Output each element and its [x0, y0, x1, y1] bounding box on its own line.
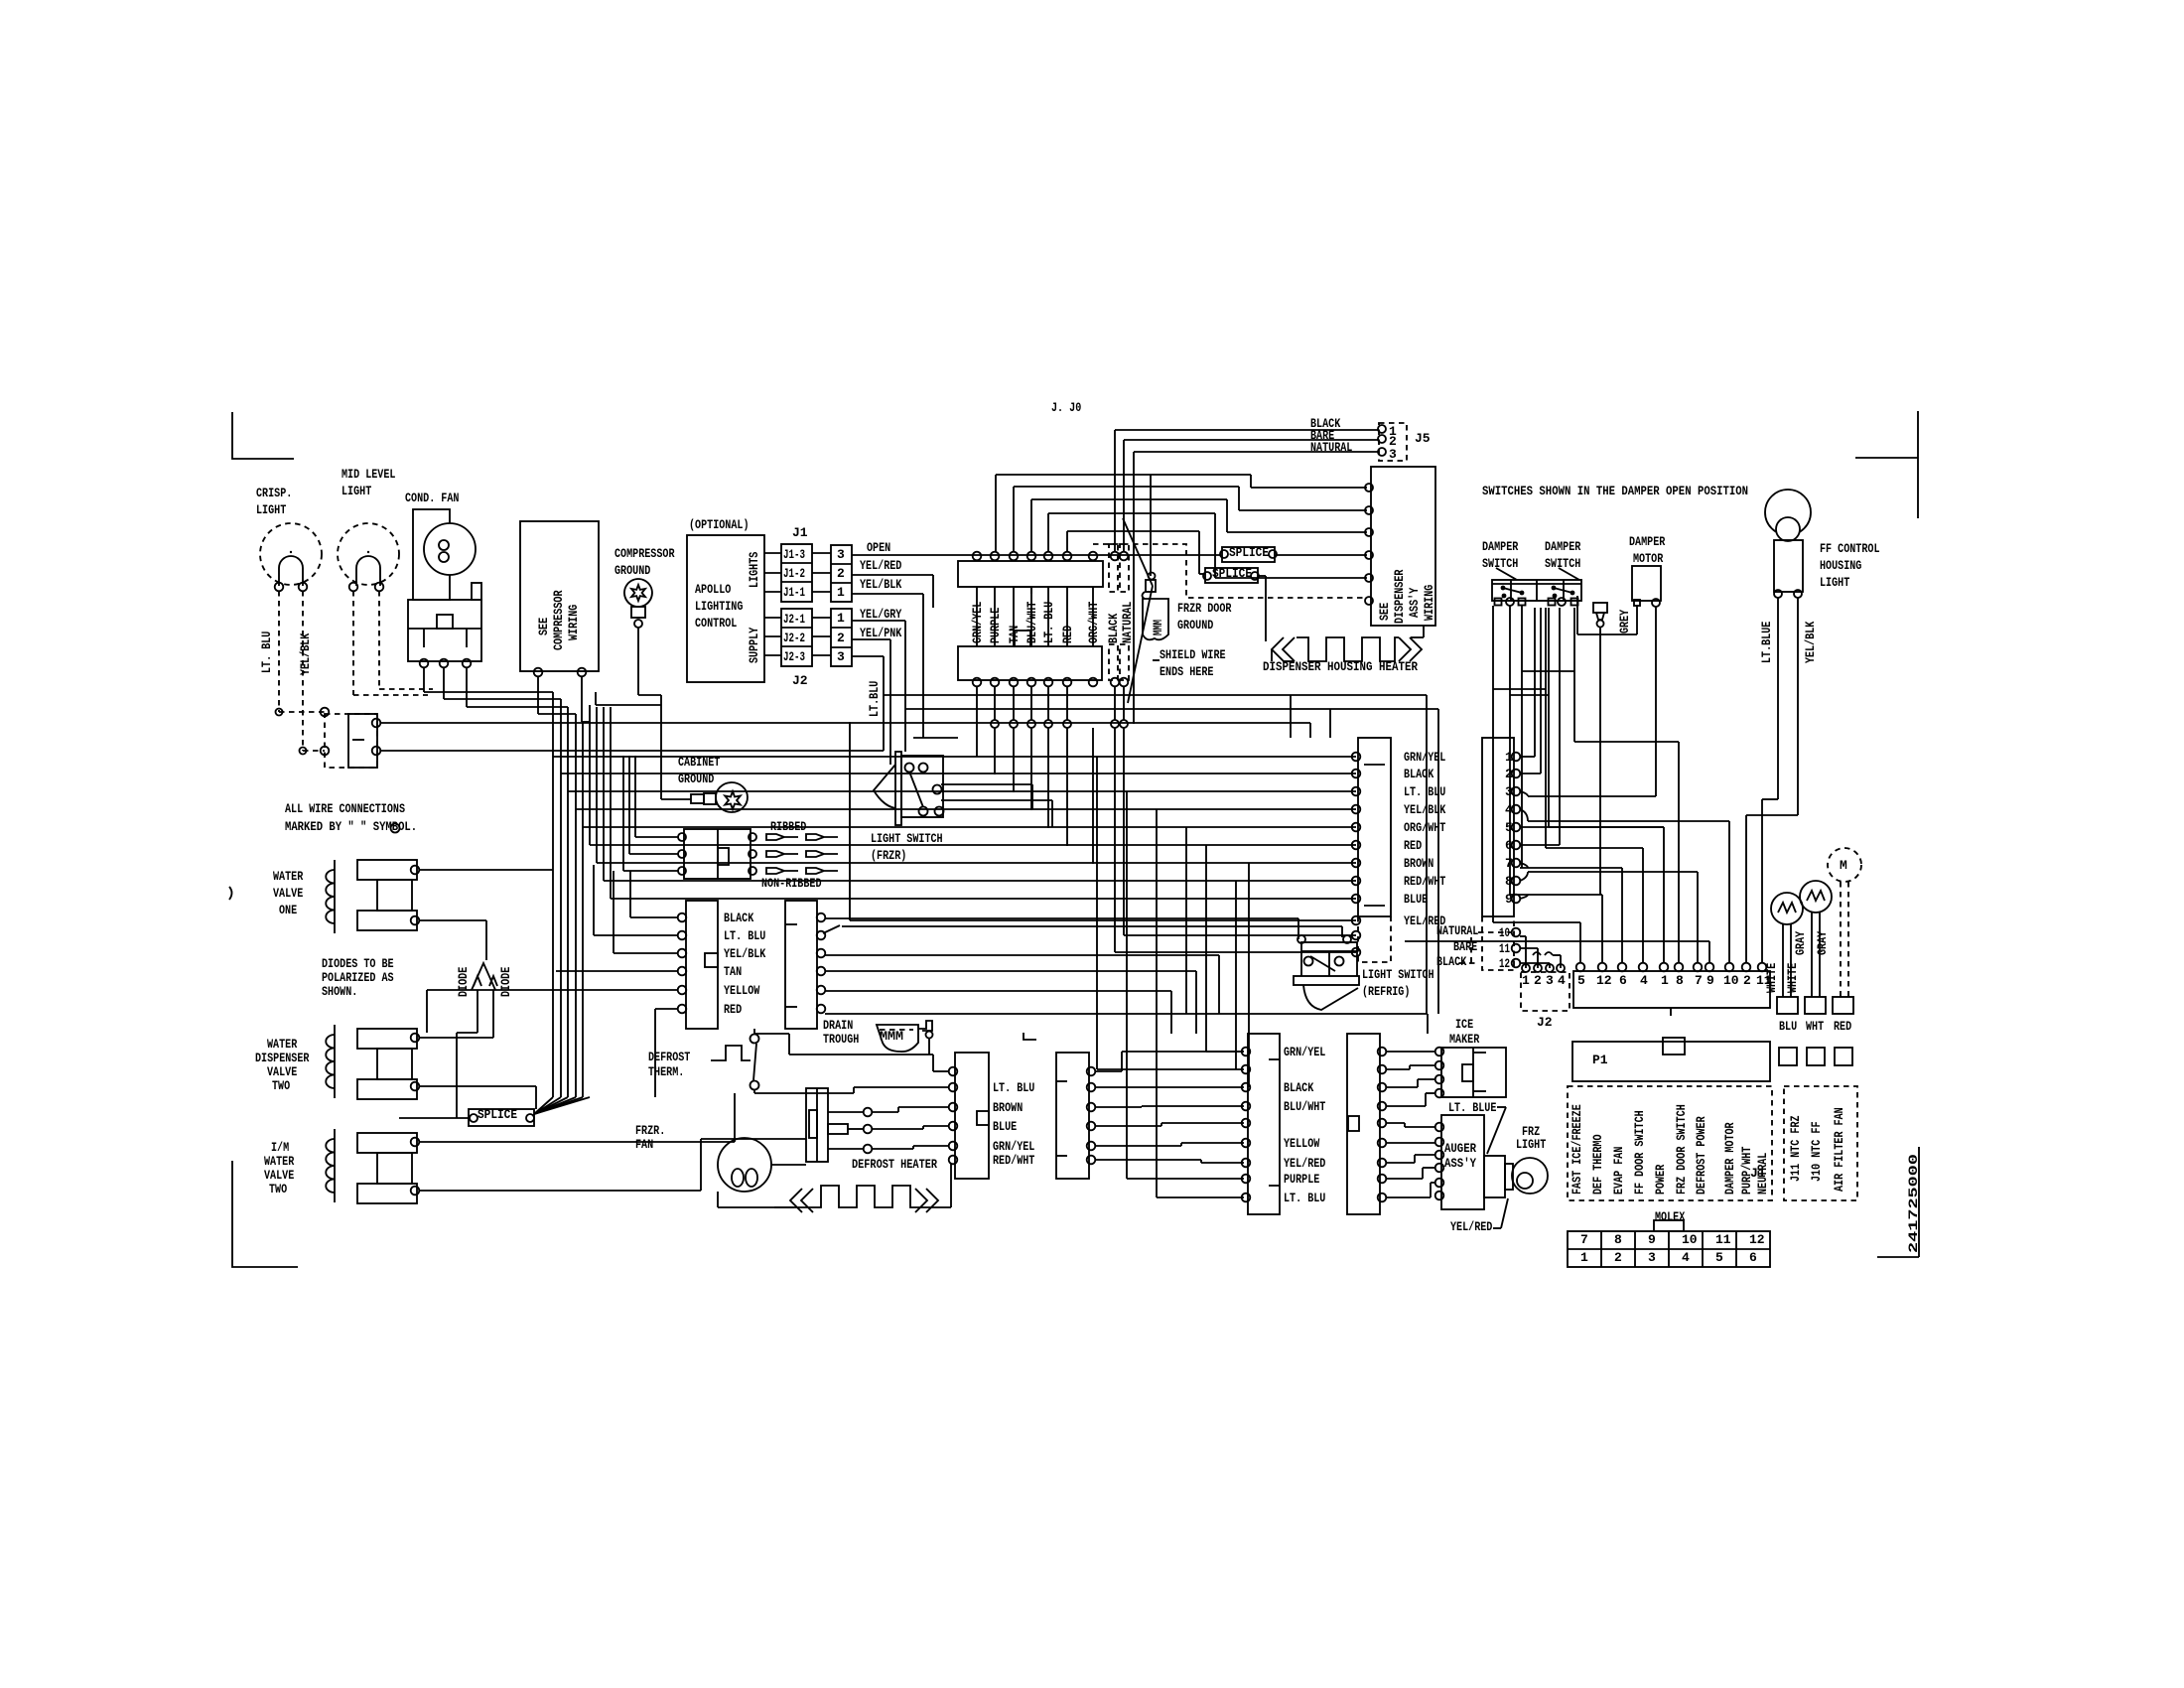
svg-text:10: 10 — [1682, 1232, 1698, 1247]
svg-text:LT. BLU: LT. BLU — [724, 928, 765, 943]
svg-text:GREY: GREY — [1617, 610, 1632, 633]
svg-text:7: 7 — [1580, 1232, 1588, 1247]
svg-text:LIGHT SWITCH: LIGHT SWITCH — [871, 831, 943, 846]
svg-text:YEL/BLK: YEL/BLK — [1803, 621, 1818, 663]
svg-text:WATER: WATER — [273, 869, 303, 884]
svg-text:POLARIZED AS: POLARIZED AS — [322, 970, 394, 985]
svg-text:1: 1 — [837, 585, 845, 600]
svg-text:WATER: WATER — [267, 1037, 297, 1052]
svg-text:J1-1: J1-1 — [783, 585, 805, 600]
svg-text:DAMPER MOTOR: DAMPER MOTOR — [1722, 1122, 1737, 1195]
svg-text:DEF THERMO: DEF THERMO — [1590, 1134, 1605, 1195]
svg-text:DAMPER: DAMPER — [1629, 534, 1665, 549]
svg-text:DISPENSER: DISPENSER — [1392, 569, 1407, 624]
svg-text:J5: J5 — [1415, 431, 1431, 446]
svg-text:GRN/YEL: GRN/YEL — [1404, 750, 1446, 765]
svg-text:P1: P1 — [1592, 1053, 1608, 1067]
svg-text:LIGHT: LIGHT — [256, 502, 286, 517]
svg-text:5: 5 — [1715, 1250, 1723, 1265]
svg-text:WIRING: WIRING — [1422, 585, 1436, 621]
svg-text:FAST ICE/FREEZE: FAST ICE/FREEZE — [1570, 1104, 1584, 1195]
svg-text:LIGHT SWITCH: LIGHT SWITCH — [1362, 967, 1434, 982]
svg-text:SWITCHES SHOWN IN THE DAMPER O: SWITCHES SHOWN IN THE DAMPER OPEN POSITI… — [1482, 484, 1748, 498]
svg-text:8: 8 — [1614, 1232, 1622, 1247]
svg-text:ALL WIRE CONNECTIONS: ALL WIRE CONNECTIONS — [285, 801, 405, 816]
svg-text:BLUE: BLUE — [993, 1119, 1017, 1134]
svg-text:YEL/RED: YEL/RED — [1450, 1219, 1493, 1234]
svg-text:DEFROST POWER: DEFROST POWER — [1694, 1116, 1708, 1195]
svg-text:MAKER: MAKER — [1449, 1032, 1479, 1047]
svg-text:TAN: TAN — [724, 964, 742, 979]
svg-text:YEL/PNK: YEL/PNK — [860, 626, 902, 640]
svg-text:7: 7 — [1695, 973, 1703, 988]
svg-text:DAMPER: DAMPER — [1482, 539, 1518, 554]
svg-text:TWO: TWO — [269, 1182, 287, 1196]
svg-text:GRN/YEL: GRN/YEL — [1284, 1045, 1326, 1059]
svg-text:BLU/WHT: BLU/WHT — [1284, 1099, 1326, 1114]
svg-text:ORG/WHT: ORG/WHT — [1404, 820, 1446, 835]
svg-text:I/M: I/M — [271, 1140, 289, 1155]
svg-text:LT. BLU: LT. BLU — [1284, 1191, 1325, 1205]
svg-text:10: 10 — [1723, 973, 1739, 988]
svg-text:J1-2: J1-2 — [783, 566, 805, 581]
svg-text:7: 7 — [1505, 856, 1513, 871]
svg-text:SEE: SEE — [1377, 603, 1392, 621]
svg-text:WIRING: WIRING — [566, 605, 581, 640]
svg-text:1: 1 — [1522, 973, 1530, 988]
svg-text:LIGHTS: LIGHTS — [747, 552, 761, 588]
svg-text:DIODE: DIODE — [456, 967, 471, 997]
svg-text:11: 11 — [1499, 941, 1510, 956]
svg-text:3: 3 — [1389, 447, 1397, 462]
svg-text:APOLLO: APOLLO — [695, 582, 731, 597]
svg-text:3: 3 — [837, 649, 845, 664]
svg-text:MID LEVEL: MID LEVEL — [341, 467, 396, 482]
svg-text:COMPRESSOR: COMPRESSOR — [551, 590, 566, 650]
svg-text:LIGHT: LIGHT — [1820, 575, 1849, 590]
svg-text:BLACK: BLACK — [1284, 1080, 1313, 1095]
svg-text:FF DOOR SWITCH: FF DOOR SWITCH — [1632, 1110, 1647, 1195]
svg-text:J2: J2 — [792, 673, 808, 688]
svg-text:ICE: ICE — [1455, 1017, 1473, 1032]
svg-text:MOLEX: MOLEX — [1655, 1209, 1685, 1224]
svg-text:NATURAL: NATURAL — [1436, 923, 1479, 938]
svg-text:RED: RED — [1404, 838, 1422, 853]
svg-text:GROUND: GROUND — [614, 563, 650, 578]
svg-text:GROUND: GROUND — [1177, 618, 1213, 633]
svg-text:SEE: SEE — [536, 618, 551, 635]
svg-text:DIODES TO BE: DIODES TO BE — [322, 956, 394, 971]
svg-text:SUPPLY: SUPPLY — [747, 628, 761, 663]
svg-text:DRAIN: DRAIN — [823, 1018, 853, 1033]
svg-text:LT. BLU: LT. BLU — [259, 632, 274, 673]
svg-text:BLACK: BLACK — [724, 911, 753, 925]
svg-text:FRZR DOOR: FRZR DOOR — [1177, 601, 1232, 616]
svg-text:5: 5 — [1505, 820, 1513, 835]
svg-text:J1: J1 — [792, 525, 808, 540]
svg-text:WHITE: WHITE — [1785, 963, 1800, 993]
svg-text:4: 4 — [1505, 802, 1513, 817]
svg-text:BLACK: BLACK — [1106, 614, 1121, 643]
svg-text:12: 12 — [1596, 973, 1612, 988]
svg-text:(FRZR): (FRZR) — [871, 848, 906, 863]
svg-text:ASS'Y: ASS'Y — [1407, 588, 1422, 618]
svg-text:TWO: TWO — [272, 1078, 290, 1093]
svg-text:5: 5 — [1577, 973, 1585, 988]
svg-text:YEL/BLK: YEL/BLK — [298, 633, 313, 675]
svg-text:DAMPER: DAMPER — [1545, 539, 1580, 554]
svg-text:9: 9 — [1648, 1232, 1656, 1247]
svg-text:1: 1 — [1505, 750, 1513, 765]
svg-text:DIODE: DIODE — [498, 967, 513, 997]
svg-text:BROWN: BROWN — [1404, 856, 1433, 871]
svg-text:(REFRIG): (REFRIG) — [1362, 984, 1410, 999]
svg-text:GRAY: GRAY — [1815, 931, 1830, 955]
svg-text:YELLOW: YELLOW — [1284, 1136, 1319, 1151]
svg-text:COND. FAN: COND. FAN — [405, 491, 459, 505]
svg-text:12: 12 — [1749, 1232, 1765, 1247]
svg-text:BLACK: BLACK — [1404, 767, 1433, 781]
svg-text:2: 2 — [1505, 767, 1513, 781]
svg-text:J2-3: J2-3 — [783, 649, 805, 664]
svg-text:RED: RED — [1834, 1019, 1851, 1034]
svg-text:RED/WHT: RED/WHT — [1404, 874, 1446, 889]
svg-text:J10 NTC FF: J10 NTC FF — [1809, 1121, 1824, 1182]
svg-text:LIGHTING: LIGHTING — [695, 599, 744, 614]
svg-text:SPLICE: SPLICE — [478, 1107, 517, 1122]
svg-text:YELLOW: YELLOW — [724, 983, 759, 998]
svg-text:ONE: ONE — [279, 903, 297, 917]
svg-text:ENDS HERE: ENDS HERE — [1160, 664, 1214, 679]
svg-text:3: 3 — [1505, 784, 1513, 799]
svg-text:HOUSING: HOUSING — [1820, 558, 1862, 573]
svg-text:241725000: 241725000 — [1906, 1154, 1921, 1253]
svg-text:(OPTIONAL): (OPTIONAL) — [689, 517, 750, 532]
svg-text:DISPENSER: DISPENSER — [255, 1051, 310, 1065]
svg-text:4: 4 — [1682, 1250, 1690, 1265]
svg-text:YEL/GRY: YEL/GRY — [860, 607, 902, 622]
svg-text:11: 11 — [1715, 1232, 1731, 1247]
svg-text:YEL/BLK: YEL/BLK — [860, 577, 902, 592]
svg-text:FF CONTROL: FF CONTROL — [1820, 541, 1880, 556]
svg-text:3: 3 — [1648, 1250, 1656, 1265]
svg-text:FAN: FAN — [635, 1137, 653, 1152]
svg-text:6: 6 — [1619, 973, 1627, 988]
svg-text:RED/WHT: RED/WHT — [993, 1153, 1035, 1168]
svg-text:NON-RIBBED: NON-RIBBED — [761, 876, 822, 891]
svg-text:LT. BLU: LT. BLU — [993, 1080, 1034, 1095]
svg-text:4: 4 — [1640, 973, 1648, 988]
svg-text:2: 2 — [1743, 973, 1751, 988]
svg-text:CONTROL: CONTROL — [695, 616, 738, 631]
svg-text:2: 2 — [1614, 1250, 1622, 1265]
svg-text:NATURAL: NATURAL — [1120, 601, 1135, 643]
svg-text:1: 1 — [1661, 973, 1669, 988]
svg-text:BLU: BLU — [1779, 1019, 1797, 1034]
svg-text:WHT: WHT — [1806, 1019, 1824, 1034]
svg-text:POWER: POWER — [1653, 1165, 1668, 1195]
svg-text:3: 3 — [1546, 973, 1554, 988]
svg-text:BLUE: BLUE — [1404, 892, 1428, 907]
svg-text:2: 2 — [1534, 973, 1542, 988]
svg-text:1: 1 — [1580, 1250, 1588, 1265]
svg-text:SWITCH: SWITCH — [1482, 556, 1518, 571]
svg-text:YEL/BLK: YEL/BLK — [1404, 802, 1446, 817]
svg-text:8: 8 — [1505, 874, 1513, 889]
svg-text:RED: RED — [724, 1002, 742, 1017]
svg-text:EVAP FAN: EVAP FAN — [1611, 1147, 1626, 1195]
svg-text:LT. BLU: LT. BLU — [1404, 784, 1445, 799]
svg-text:DEFROST: DEFROST — [648, 1050, 691, 1064]
svg-text:DEFROST HEATER: DEFROST HEATER — [852, 1157, 937, 1172]
svg-text:6: 6 — [1749, 1250, 1757, 1265]
svg-text:J1-3: J1-3 — [783, 547, 805, 562]
svg-text:GRN/YEL: GRN/YEL — [993, 1139, 1035, 1154]
svg-text:2: 2 — [837, 631, 845, 645]
svg-text:M: M — [1840, 858, 1847, 873]
svg-text:SHIELD WIRE: SHIELD WIRE — [1160, 647, 1226, 662]
svg-text:2: 2 — [837, 566, 845, 581]
svg-text:SPLICE: SPLICE — [1212, 566, 1252, 581]
svg-text:WATER: WATER — [264, 1154, 294, 1169]
svg-text:3: 3 — [837, 547, 845, 562]
svg-text:ASS'Y: ASS'Y — [1444, 1156, 1476, 1171]
svg-text:YEL/RED: YEL/RED — [1284, 1156, 1326, 1171]
svg-text:YEL/RED: YEL/RED — [860, 558, 902, 573]
svg-text:J11 NTC FRZ: J11 NTC FRZ — [1788, 1115, 1803, 1182]
svg-text:VALVE: VALVE — [264, 1168, 294, 1183]
svg-text:THERM.: THERM. — [648, 1064, 684, 1079]
svg-text:WHITE: WHITE — [1764, 963, 1779, 993]
svg-text:CRISP.: CRISP. — [256, 486, 292, 500]
svg-text:OPEN: OPEN — [867, 540, 890, 555]
svg-text:LT.BLUE: LT.BLUE — [1759, 621, 1774, 663]
svg-text:LT. BLUE: LT. BLUE — [1448, 1100, 1497, 1115]
svg-text:AIR FILTER FAN: AIR FILTER FAN — [1832, 1107, 1846, 1192]
svg-text:BROWN: BROWN — [993, 1100, 1023, 1115]
svg-text:TROUGH: TROUGH — [823, 1032, 859, 1047]
svg-text:MMM: MMM — [1151, 620, 1165, 635]
svg-text:12: 12 — [1499, 956, 1510, 971]
svg-text:8: 8 — [1676, 973, 1684, 988]
svg-text:6: 6 — [1505, 838, 1513, 853]
svg-text:FRZR.: FRZR. — [635, 1123, 665, 1138]
svg-text:GRAY: GRAY — [1793, 931, 1808, 955]
svg-text:AUGER: AUGER — [1444, 1141, 1476, 1156]
svg-text:9: 9 — [1706, 973, 1714, 988]
svg-text:COMPRESSOR: COMPRESSOR — [614, 546, 675, 561]
svg-text:J2-2: J2-2 — [783, 631, 805, 645]
svg-text:J2: J2 — [1537, 1015, 1553, 1030]
svg-text:VALVE: VALVE — [267, 1064, 297, 1079]
svg-text:NATURAL: NATURAL — [1310, 440, 1353, 455]
svg-text:J2-1: J2-1 — [783, 612, 805, 627]
svg-text:SPLICE: SPLICE — [1229, 545, 1269, 560]
svg-text:LT.BLU: LT.BLU — [867, 681, 882, 717]
svg-text:VALVE: VALVE — [273, 886, 303, 901]
svg-text:4: 4 — [1558, 973, 1566, 988]
svg-text:FRZ DOOR SWITCH: FRZ DOOR SWITCH — [1674, 1104, 1689, 1195]
svg-text:LIGHT: LIGHT — [341, 484, 371, 498]
svg-text:1: 1 — [837, 611, 845, 626]
svg-text:J. J0: J. J0 — [1051, 400, 1081, 415]
svg-text:RIBBED: RIBBED — [770, 819, 806, 834]
svg-text:SHOWN.: SHOWN. — [322, 984, 357, 999]
svg-text:MMM: MMM — [880, 1029, 903, 1044]
svg-text:PURPLE: PURPLE — [1284, 1172, 1319, 1187]
svg-text:LIGHT: LIGHT — [1516, 1137, 1546, 1152]
svg-text:YEL/BLK: YEL/BLK — [724, 946, 766, 961]
svg-text:MOTOR: MOTOR — [1633, 551, 1663, 566]
svg-text:J1: J1 — [1750, 1166, 1766, 1181]
svg-text:SWITCH: SWITCH — [1545, 556, 1580, 571]
svg-text:BLACK: BLACK — [1436, 954, 1466, 969]
